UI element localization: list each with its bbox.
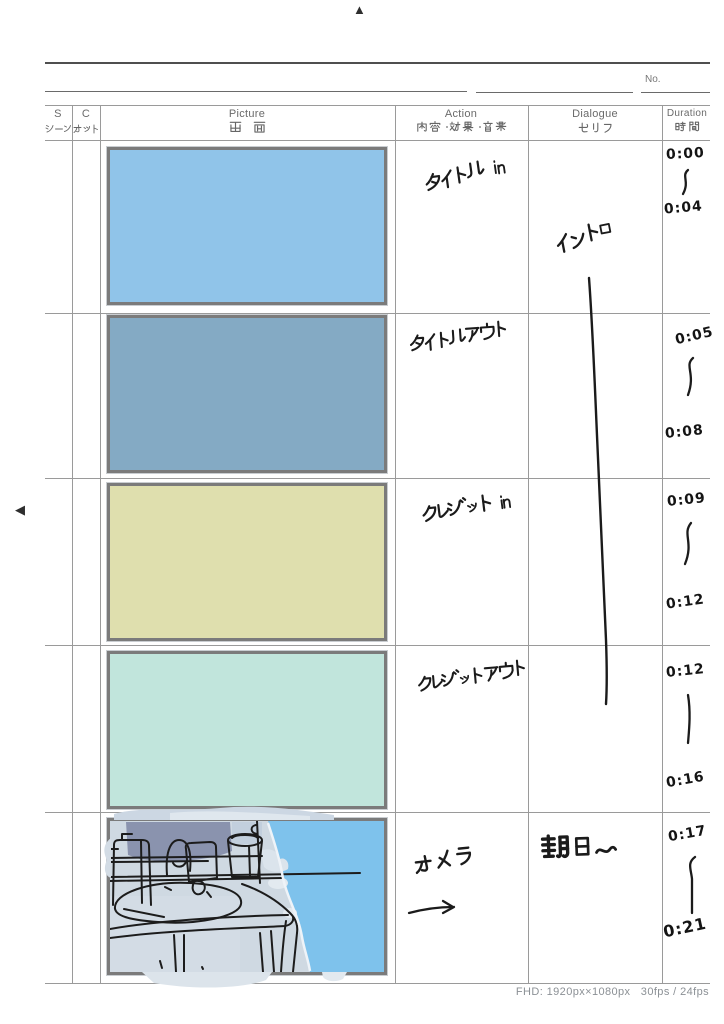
duration-connector-1: [678, 168, 696, 198]
header-dialogue-en: Dialogue: [572, 108, 618, 120]
format-spec-footer: FHD: 1920px×1080px 30fps / 24fps: [516, 986, 709, 998]
action-note-1: [421, 145, 531, 205]
duration-end-2: 0:08: [664, 422, 704, 442]
duration-start-4: 0:12: [665, 661, 705, 681]
storyboard-sheet: ▲ ◀ No. S C Picture Action Dialogue Dura…: [0, 0, 724, 1024]
paint-spill-top: [110, 804, 340, 821]
duration-end-5: 0:21: [662, 914, 709, 942]
paint-spill-left: [100, 836, 112, 880]
camera-pan-arrow: [406, 897, 464, 921]
header-cut-en: C: [82, 108, 90, 120]
duration-connector-3: [680, 520, 700, 570]
header-duration-en: Duration: [667, 108, 707, 119]
dialogue-continuation-line: [582, 272, 614, 712]
header-cut-ja: [73, 124, 101, 136]
dialogue-note-5: [539, 830, 624, 869]
duration-start-2: 0:05: [674, 324, 715, 348]
action-note-3: [419, 479, 543, 533]
duration-connector-4: [684, 693, 698, 749]
header-scene-ja: [45, 124, 73, 136]
duration-start-5: 0:17: [667, 823, 708, 845]
duration-start-1: 0:00: [666, 145, 706, 163]
duration-end-1: 0:04: [663, 198, 703, 217]
grid-line-v: [395, 105, 396, 983]
duration-connector-5: [686, 855, 704, 921]
no-writing-line: [641, 92, 710, 93]
duration-start-3: 0:09: [666, 490, 706, 510]
duration-end-4: 0:16: [665, 769, 706, 791]
header-duration-ja: [674, 121, 702, 135]
grid-line-v: [528, 105, 529, 983]
title-writing-line: [45, 91, 467, 92]
picture-frame-2: [107, 315, 387, 473]
header-scene-en: S: [54, 108, 62, 120]
header-dialogue-ja: [578, 122, 614, 135]
dialogue-note-1: [551, 210, 635, 264]
duration-end-3: 0:12: [665, 591, 706, 612]
subtitle-writing-line: [476, 92, 633, 93]
grid-line-v: [662, 105, 663, 983]
picture-frame-3: [107, 483, 387, 641]
picture-frame-4: [107, 651, 387, 809]
action-note-2: [408, 315, 531, 365]
duration-connector-2: [682, 355, 702, 400]
top-rule: [45, 62, 710, 64]
grid-line-h: [45, 140, 710, 141]
header-action-ja: [416, 121, 508, 135]
paint-spill-bottom-small: [320, 970, 350, 984]
no-label: No.: [645, 74, 661, 85]
grid-line-v: [72, 105, 73, 983]
action-note-5: [412, 843, 477, 883]
header-action-en: Action: [445, 108, 477, 120]
page-top-marker-icon: ▲: [353, 3, 366, 16]
picture-frame-5: [107, 818, 387, 975]
header-picture-en: Picture: [229, 108, 265, 120]
picture-frame-1: [107, 147, 387, 305]
sink-sketch: [110, 821, 384, 972]
page-side-marker-icon: ◀: [15, 503, 25, 516]
header-picture-ja: [229, 121, 267, 135]
paint-spill-bottom: [138, 970, 278, 992]
grid-line-h: [45, 105, 710, 106]
